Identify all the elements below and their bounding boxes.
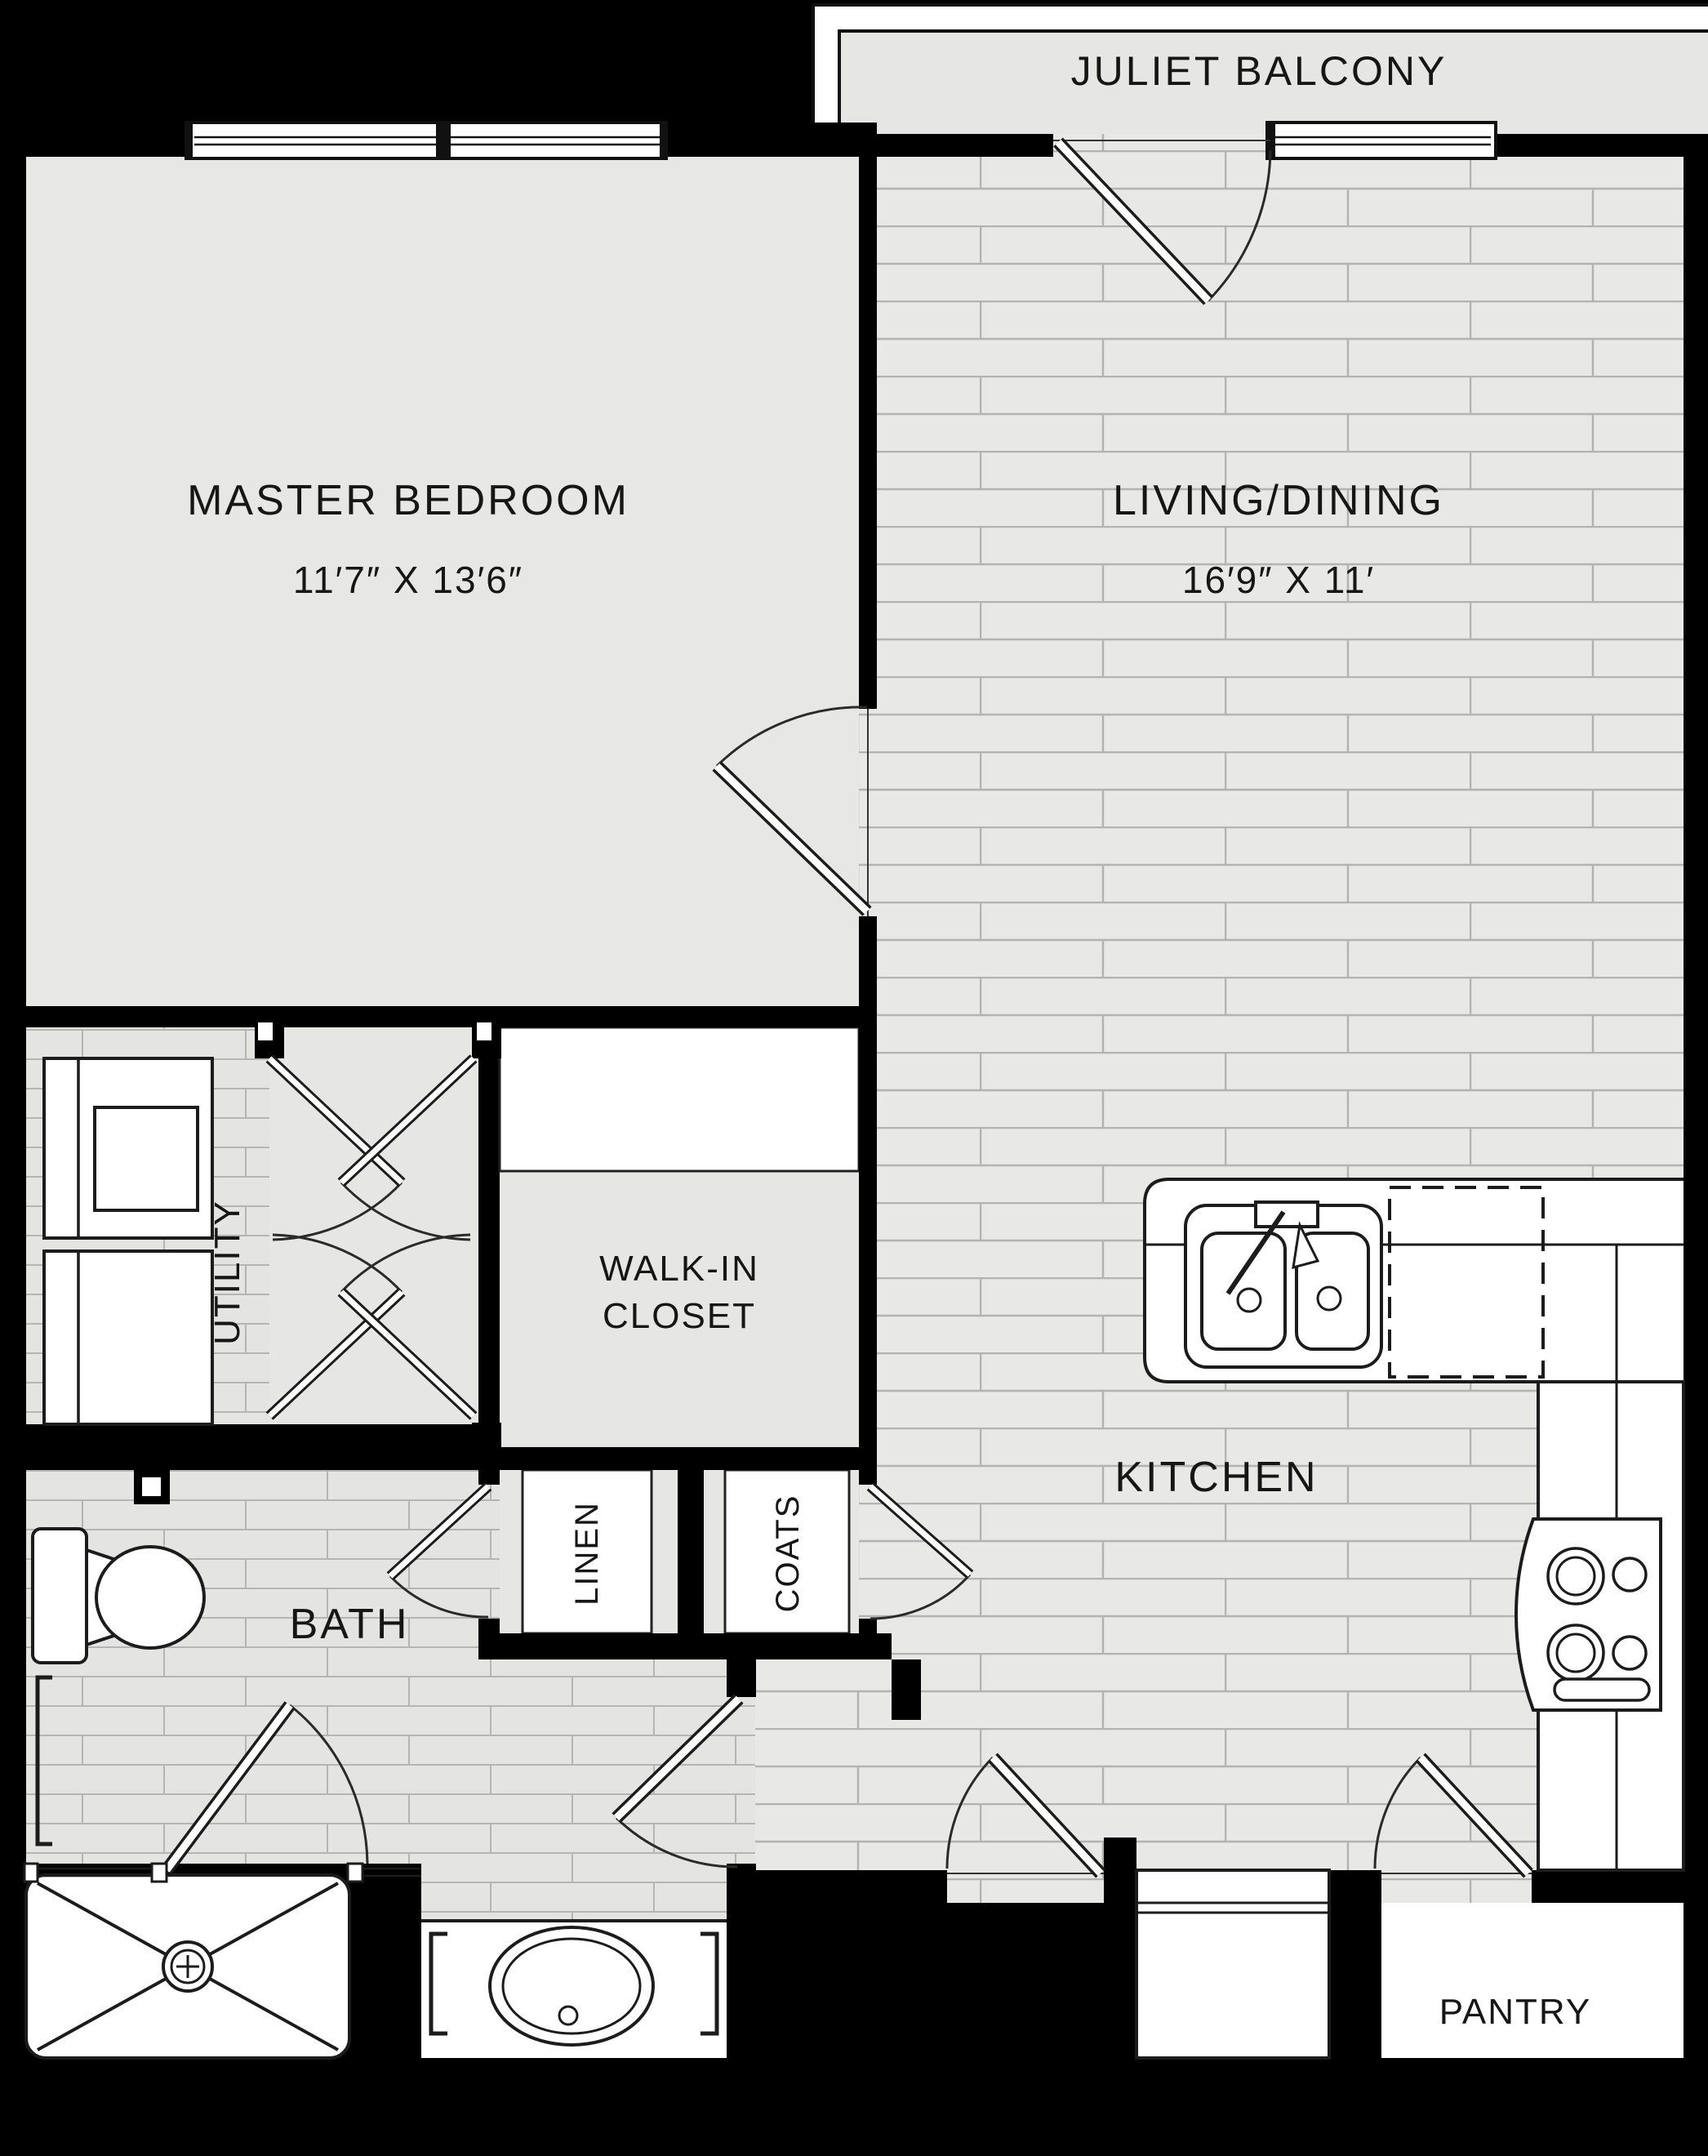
pantry-label: PANTRY xyxy=(1439,1992,1591,2032)
kitchen-sink xyxy=(1185,1202,1381,1367)
living-window xyxy=(1265,121,1496,160)
stove xyxy=(1516,1519,1661,1710)
threshold-coats-door xyxy=(859,1485,877,1619)
walkin-shelf xyxy=(500,1027,859,1171)
floorplan-drawing: JULIET BALCONY xyxy=(0,0,1708,2156)
threshold-entry-door xyxy=(947,1870,1104,1903)
dryer-unit xyxy=(44,1251,212,1424)
master-bedroom-dims: 11′7″ X 13′6″ xyxy=(293,559,523,601)
threshold-pantry-door xyxy=(1381,1870,1532,1903)
vanity-sink xyxy=(490,1927,653,2045)
shower xyxy=(26,1875,349,2058)
floorplan-page: JULIET BALCONY xyxy=(0,0,1708,2156)
walkin-closet-label-line2: CLOSET xyxy=(603,1296,756,1336)
linen-label: LINEN xyxy=(569,1501,605,1606)
floor-entry-hall xyxy=(755,1659,877,1870)
floor-bath-door-threshold xyxy=(727,1697,755,1864)
living-dining-label: LIVING/DINING xyxy=(1113,477,1444,524)
plumbing-chase-detail xyxy=(134,1470,170,1504)
balcony-label: JULIET BALCONY xyxy=(1071,48,1448,94)
floor-vanity-strip xyxy=(421,1864,727,1921)
walkin-closet-label-line1: WALK-IN xyxy=(599,1249,759,1289)
living-dining-dims: 16′9″ X 11′ xyxy=(1182,559,1375,601)
refrigerator xyxy=(1136,1870,1329,2058)
floor-pantry xyxy=(1381,1903,1684,2058)
washer-unit xyxy=(44,1058,212,1238)
master-bedroom-label: MASTER BEDROOM xyxy=(187,477,629,524)
coats-label: COATS xyxy=(770,1494,806,1613)
juliet-balcony: JULIET BALCONY xyxy=(813,5,1708,139)
bedroom-windows xyxy=(185,121,668,160)
kitchen-label: KITCHEN xyxy=(1114,1454,1318,1501)
threshold-linen-door xyxy=(478,1485,500,1619)
bath-label: BATH xyxy=(290,1601,410,1648)
utility-label: UTILITY xyxy=(207,1200,247,1345)
